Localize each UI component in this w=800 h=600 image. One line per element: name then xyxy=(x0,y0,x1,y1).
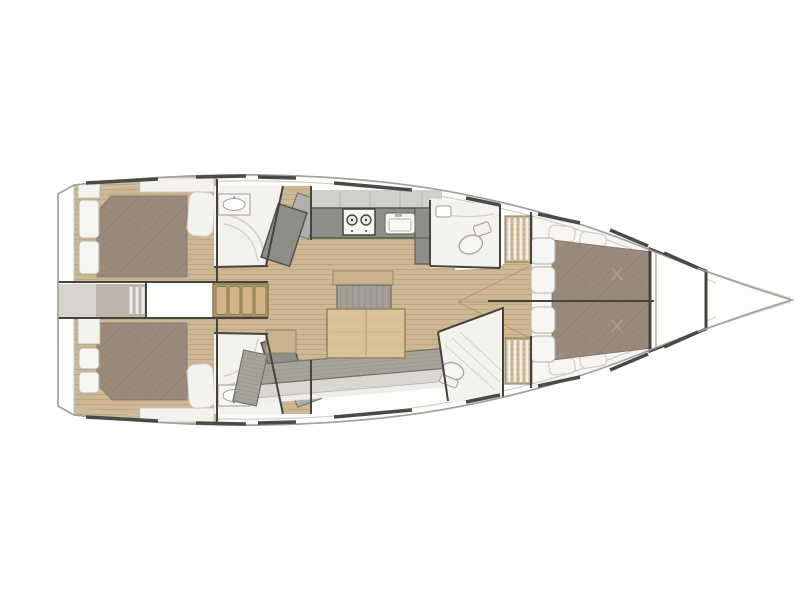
washbasin xyxy=(223,199,245,211)
dining-table xyxy=(327,309,405,358)
stove-knob xyxy=(351,230,353,232)
pillow xyxy=(79,200,99,238)
step-tread xyxy=(216,287,227,315)
seat-backrest xyxy=(333,271,393,285)
locker xyxy=(78,184,100,198)
step-tread xyxy=(255,287,266,315)
pillow xyxy=(79,241,99,274)
side-table xyxy=(266,330,296,353)
pillow xyxy=(531,238,555,264)
anchor-locker xyxy=(650,249,706,351)
wardrobe xyxy=(186,191,215,237)
stove-knob xyxy=(365,230,367,232)
ottoman xyxy=(337,285,391,309)
forward-head-port xyxy=(430,198,500,268)
forward-cabin-slatted-seat-starboard xyxy=(505,338,532,384)
washbasin xyxy=(436,206,451,217)
pillow xyxy=(531,307,555,333)
faucet xyxy=(233,196,235,198)
companionway xyxy=(58,282,268,318)
forward-cabin-slatted-seat-port xyxy=(505,216,532,262)
faucet xyxy=(395,213,402,217)
galley-sink xyxy=(385,213,415,234)
double-berth xyxy=(97,323,187,400)
companionway-steps xyxy=(213,284,268,317)
pillow xyxy=(79,348,99,369)
engine-box xyxy=(146,282,214,318)
boat-floor-plan xyxy=(0,0,800,600)
wardrobe xyxy=(186,363,215,409)
cockpit-sole-dark xyxy=(96,284,147,317)
step-tread xyxy=(242,287,253,315)
locker xyxy=(78,318,100,344)
double-berth xyxy=(97,196,187,277)
pillow xyxy=(531,336,555,362)
yacht-floorplan-page xyxy=(0,0,800,600)
pillow xyxy=(531,267,555,293)
pillow xyxy=(79,372,99,393)
stove-2-burner xyxy=(343,209,375,235)
step-tread xyxy=(229,287,240,315)
